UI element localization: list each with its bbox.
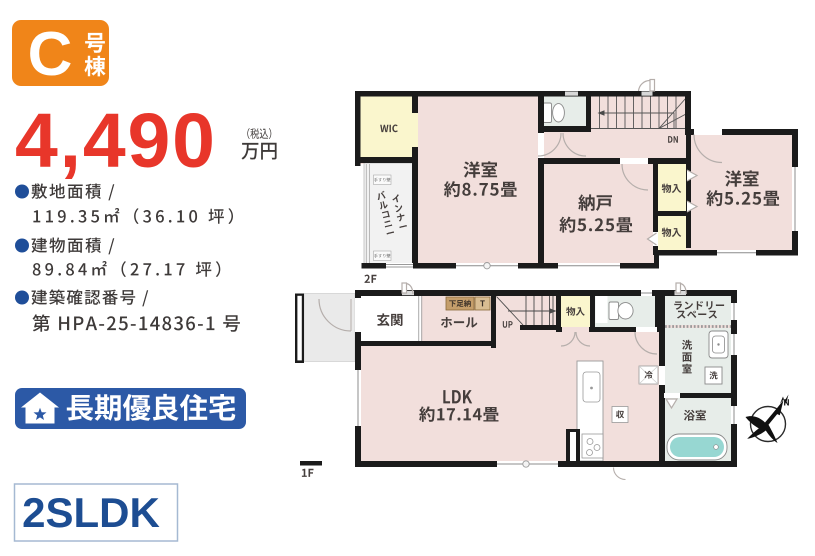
svg-text:4,490: 4,490 xyxy=(15,98,217,184)
svg-text:C: C xyxy=(28,20,73,89)
svg-text:2SLDK: 2SLDK xyxy=(22,489,160,536)
